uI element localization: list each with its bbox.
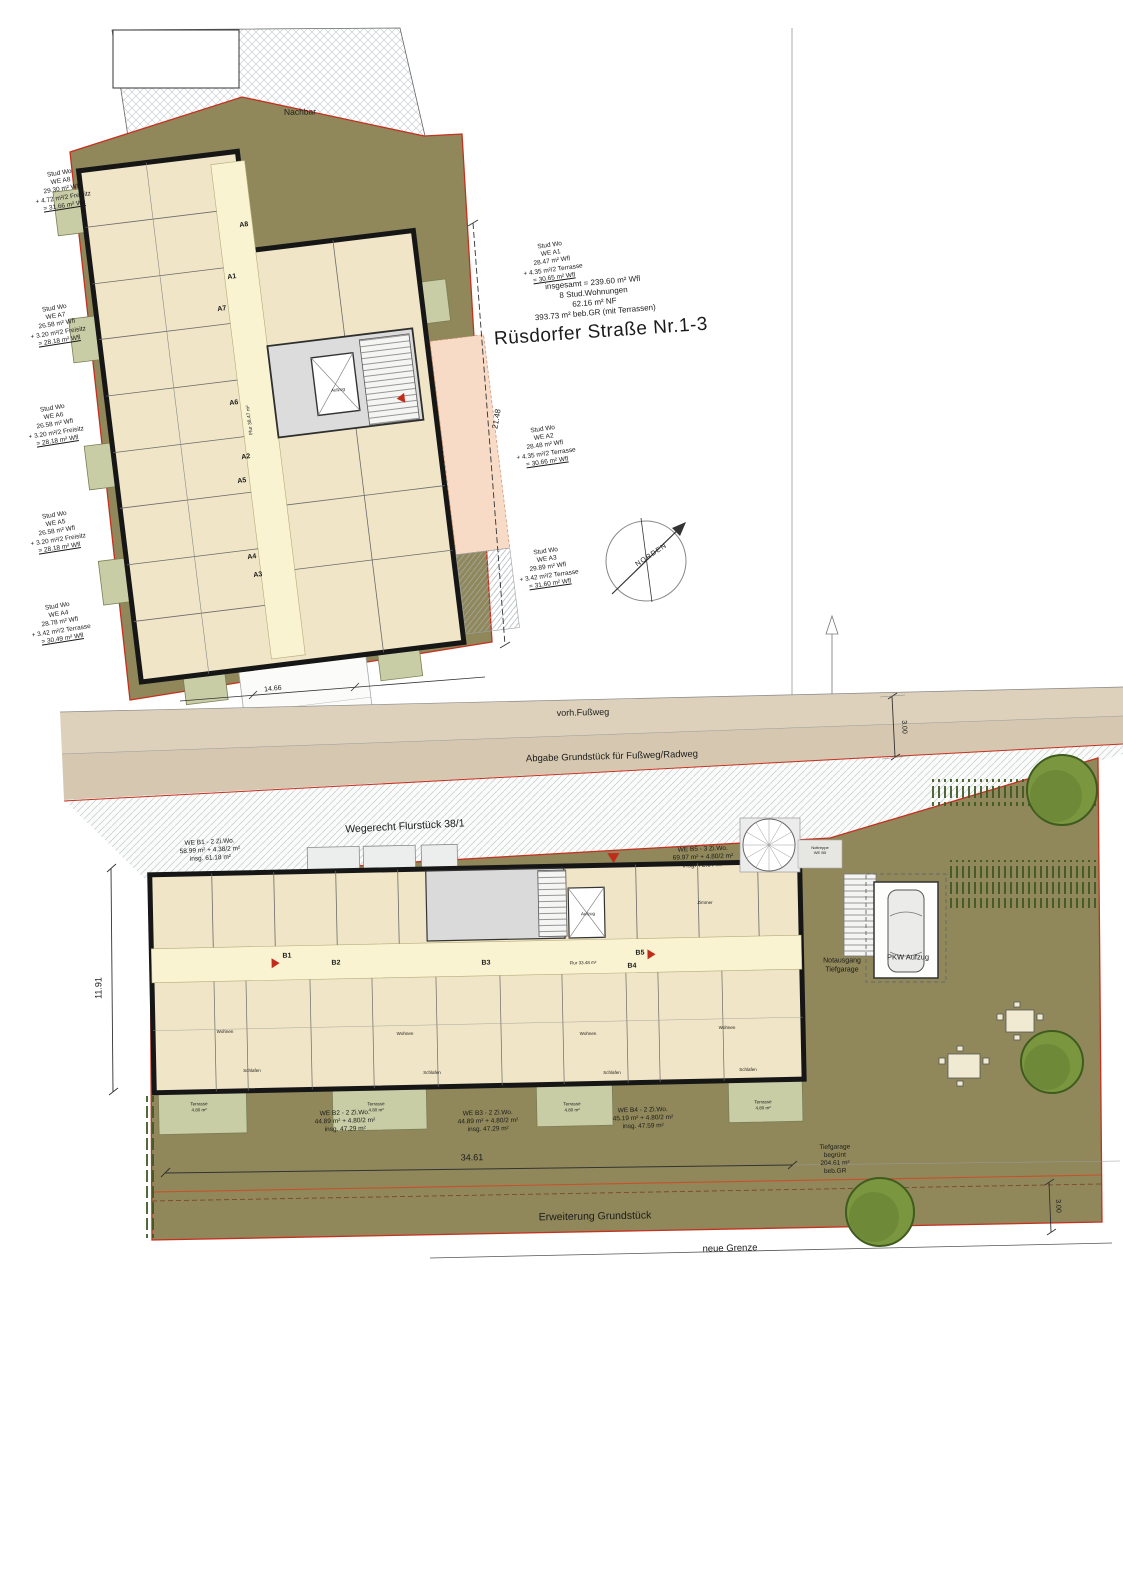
marker-a7: A7 [217, 305, 227, 315]
unit-b4-label: WE B4 - 2 Zi.Wo.45.19 m² + 4.80/2 m²insg… [582, 1097, 703, 1141]
fussweg-label: vorh.Fußweg [557, 707, 610, 719]
room-schlafen-4: Schlafen [739, 1067, 757, 1073]
terrasse-label-1: Terrasse 4.80 m² [190, 1101, 207, 1113]
dim-11-91 [107, 864, 118, 1095]
room-wohnen-2: Wohnen [397, 1031, 414, 1037]
terrasse-label-3: Terrasse 4.80 m² [563, 1101, 580, 1113]
room-schlafen-1: Schlafen [243, 1068, 261, 1074]
marker-a8: A8 [239, 221, 249, 231]
marker-b4: B4 [627, 963, 636, 972]
marker-a6: A6 [229, 399, 239, 409]
room-wohnen-4: Wohnen [719, 1025, 736, 1031]
emergency-stair-icon [844, 874, 876, 956]
dim-3-00-oben-label: 3.00 [898, 720, 907, 734]
terrasse-label-4: Terrasse 4.80 m² [754, 1099, 771, 1111]
dim-3-00-unten-label: 3.00 [1052, 1199, 1061, 1213]
dim-14-66-label: 14.66 [264, 685, 282, 696]
aufzug-b-label: Aufzug [581, 911, 595, 917]
room-schlafen-3: Schlafen [603, 1070, 621, 1076]
pkw-aufzug-label: PKW Aufzug [887, 952, 929, 961]
car-elevator-icon [866, 874, 946, 982]
marker-b2: B2 [331, 960, 340, 969]
marker-a4: A4 [247, 553, 257, 563]
room-wohnen-3: Wohnen [580, 1031, 597, 1037]
terrasse-label-2: Terrasse 4.80 m² [367, 1101, 384, 1113]
marker-a3: A3 [253, 571, 263, 581]
tiefgarage-label: Tiefgarage begrünt 204.61 m² beb.GR [819, 1143, 850, 1176]
unit-b2-label: WE B2 - 2 Zi.Wo.44.89 m² + 4.80/2 m²insg… [284, 1100, 405, 1144]
dim-34-61-label: 34.61 [461, 1152, 484, 1164]
marker-a2: A2 [241, 453, 251, 463]
room-schlafen-2: Schlafen [423, 1070, 441, 1076]
room-wohnen-1: Wohnen [217, 1029, 234, 1035]
unit-b5-label: WE B5 - 3 Zi.Wo.69.97 m² + 4.80/2 m²insg… [642, 836, 763, 881]
room-zimmer: Zimmer [697, 900, 712, 906]
neue-grenze-label: neue Grenze [702, 1242, 757, 1255]
marker-b3: B3 [481, 960, 490, 969]
unit-b1-label: WE B1 - 2 Zi.Wo.58.99 m² + 4.38/2 m²insg… [149, 828, 271, 875]
marker-a5: A5 [237, 477, 247, 487]
boundary-arrow [826, 616, 838, 694]
site-plan: Nachbar Rüsdorfer Straße Nr.1-3 insgesam… [0, 0, 1123, 1587]
marker-a1: A1 [227, 273, 237, 283]
unit-b3-label: WE B3 - 2 Zi.Wo.44.89 m² + 4.80/2 m²insg… [427, 1100, 548, 1144]
notausgang-label: Notausgang Tiefgarage [823, 957, 861, 975]
neighbor-label: Nachbar [284, 106, 316, 117]
marker-b1: B1 [282, 953, 291, 962]
dim-11-91-label: 11.91 [93, 977, 104, 999]
marker-b5: B5 [635, 950, 644, 959]
nottreppe-label: Nottreppe WE B5 [811, 845, 829, 855]
